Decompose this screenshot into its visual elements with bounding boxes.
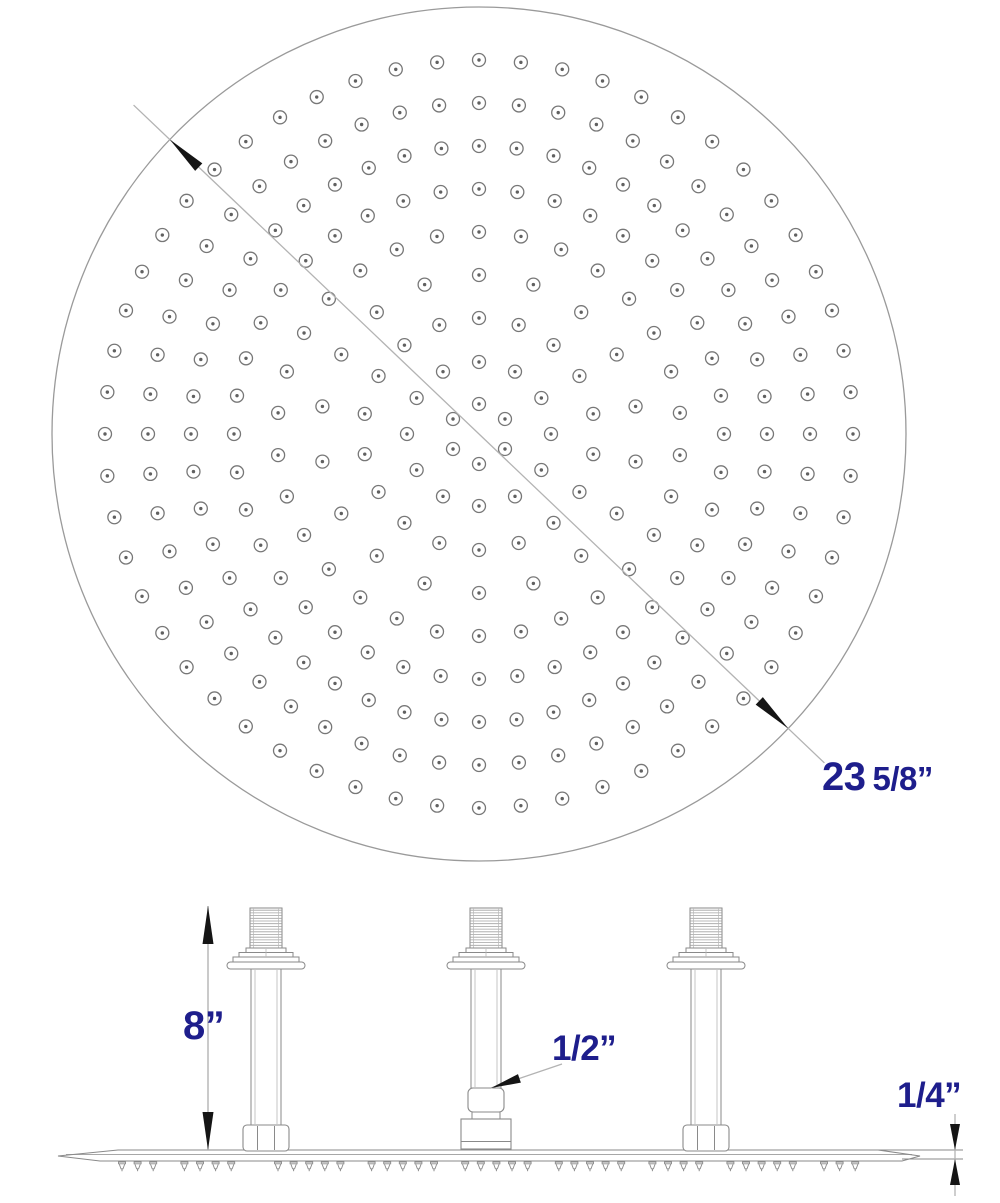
diameter-value-fraction: 5/8”: [873, 762, 933, 795]
plate-thickness-dimension-label: 1/4”: [897, 1078, 961, 1113]
diameter-dimension-label: 23 5/8”: [822, 757, 933, 797]
technical-drawing-svg: [0, 0, 1000, 1203]
shower-head-spec-diagram: 23 5/8” 8” 1/2” 1/4”: [0, 0, 1000, 1203]
inlet-size-dimension-label: 1/2”: [552, 1031, 616, 1066]
diameter-value-whole: 23: [822, 757, 866, 797]
arm-height-dimension-label: 8”: [183, 1006, 224, 1046]
